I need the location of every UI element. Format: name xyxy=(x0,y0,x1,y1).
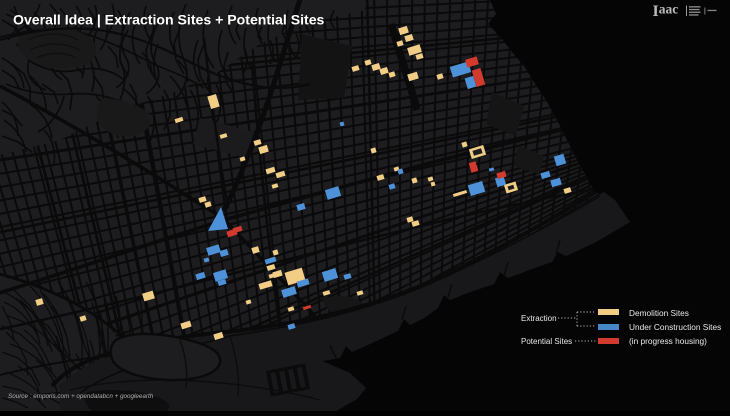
svg-text:Overall Idea | Extraction Site: Overall Idea | Extraction Sites + Potent… xyxy=(13,12,325,28)
svg-text:Under Construction Sites: Under Construction Sites xyxy=(629,322,721,332)
svg-text:I: I xyxy=(653,3,659,20)
svg-text:Source : emporis.com + opendat: Source : emporis.com + opendatabcn + goo… xyxy=(8,393,154,400)
svg-text:Demolition Sites: Demolition Sites xyxy=(629,308,689,318)
svg-text:Potential Sites: Potential Sites xyxy=(521,337,572,346)
svg-text:Extraction: Extraction xyxy=(521,314,557,323)
svg-text:(in progress housing): (in progress housing) xyxy=(629,336,707,346)
svg-text:aac: aac xyxy=(659,1,679,16)
